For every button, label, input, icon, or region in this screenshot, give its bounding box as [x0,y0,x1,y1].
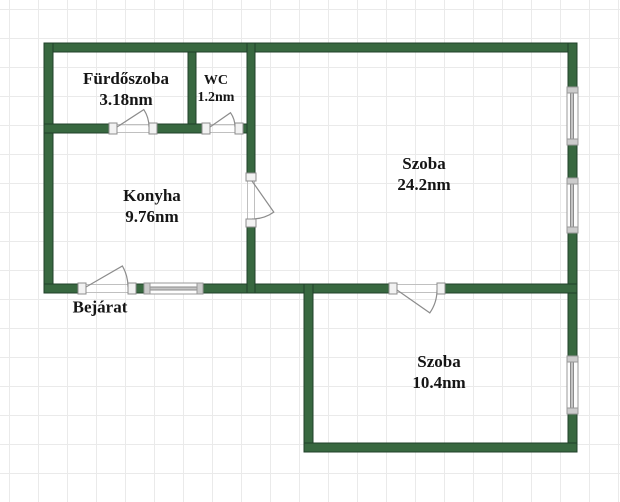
wall-segment [304,443,577,452]
wall-segment [247,227,255,293]
kitchen-door-jamb [246,173,256,181]
room-name: Konyha [123,185,181,206]
wall-segment [445,284,577,293]
big-room-window-1-glass [571,93,574,139]
wc-door-jamb [235,123,243,134]
big-room-window-1-cap [567,87,578,93]
room-label-wc: WC 1.2nm [198,72,235,106]
wall-segment [247,43,255,173]
room-name: Szoba [397,153,450,174]
room-area: 9.76nm [123,206,181,227]
room-label-furdoszoba: Fürdőszoba 3.18nm [83,68,169,110]
big-room-window-2-cap [567,227,578,233]
kitchen-window-cap [197,283,203,294]
wall-segment [44,284,78,293]
wc-door-jamb [202,123,210,134]
room-area: 3.18nm [83,89,169,110]
wall-segment [44,43,577,52]
kitchen-door-jamb [246,219,256,227]
wall-segment [157,124,202,133]
bathroom-door-jamb [149,123,157,134]
wall-segment [203,284,389,293]
wall-segment [44,124,109,133]
room-label-konyha: Konyha 9.76nm [123,185,181,227]
room-name: Fürdőszoba [83,68,169,89]
big-room-window-2-glass [571,184,574,227]
big-room-window-2-cap [567,178,578,184]
wall-segment [568,233,577,356]
room-area: 24.2nm [397,174,450,195]
bathroom-door-jamb [109,123,117,134]
wall-segment [188,52,196,132]
room-label-bejarat: Bejárat [73,297,128,318]
room-name: Szoba [412,351,465,372]
kitchen-window-glass [150,287,197,290]
entrance-door-jamb [78,283,86,294]
small-room-door-swing [397,290,437,313]
wall-segment [136,284,144,293]
small-room-door-jamb [437,283,445,294]
kitchen-door-swing [252,181,274,219]
entrance-door-jamb [128,283,136,294]
small-room-door-jamb [389,283,397,294]
small-room-window-cap [567,356,578,362]
room-area: 1.2nm [198,89,235,106]
room-label-szoba-nagy: Szoba 24.2nm [397,153,450,195]
room-name: WC [198,72,235,89]
room-name: Bejárat [73,297,128,318]
kitchen-window-cap [144,283,150,294]
room-label-szoba-kis: Szoba 10.4nm [412,351,465,393]
room-area: 10.4nm [412,372,465,393]
small-room-window-glass [571,362,574,408]
wall-segment [568,145,577,178]
wall-segment [44,43,53,293]
floorplan-canvas: Fürdőszoba 3.18nm WC 1.2nm Konyha 9.76nm… [0,0,620,502]
small-room-window-cap [567,408,578,414]
wall-segment [568,43,577,87]
entrance-door-swing [86,266,128,287]
big-room-window-1-cap [567,139,578,145]
wall-segment [304,284,313,452]
